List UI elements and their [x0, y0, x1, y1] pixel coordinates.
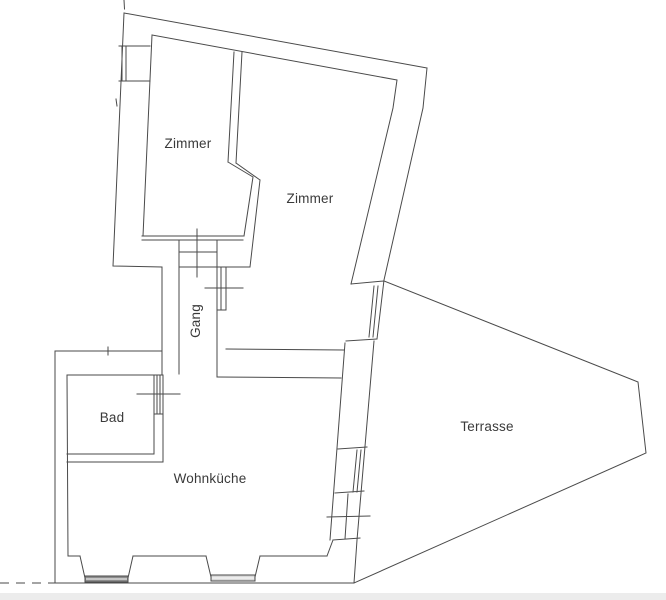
window-symbol-upper-left — [119, 46, 150, 81]
corridor-door-symbol — [205, 268, 243, 310]
room-label-gang: Gang — [188, 304, 203, 338]
room-label-zimmer-left: Zimmer — [165, 136, 212, 151]
window-symbol-bottom-middle — [206, 556, 260, 581]
corridor-walls — [179, 229, 250, 377]
floorplan-drawing: Zimmer Zimmer Gang Bad Wohnküche Terrass… — [0, 0, 666, 600]
outer-walls — [55, 0, 427, 583]
room-label-bad: Bad — [100, 410, 125, 425]
bottom-gray-band — [0, 593, 666, 600]
floorplan-page: Zimmer Zimmer Gang Bad Wohnküche Terrass… — [0, 0, 666, 600]
room-divider-wall — [228, 52, 260, 267]
bathroom-walls — [67, 375, 163, 556]
window-symbol-east-lower — [335, 447, 367, 493]
room-label-terrasse: Terrasse — [460, 419, 513, 434]
window-symbol-bottom-left — [80, 556, 133, 582]
room-label-zimmer-right: Zimmer — [287, 191, 334, 206]
bathroom-door-symbol — [137, 375, 180, 414]
room-label-wohnkueche: Wohnküche — [174, 471, 247, 486]
